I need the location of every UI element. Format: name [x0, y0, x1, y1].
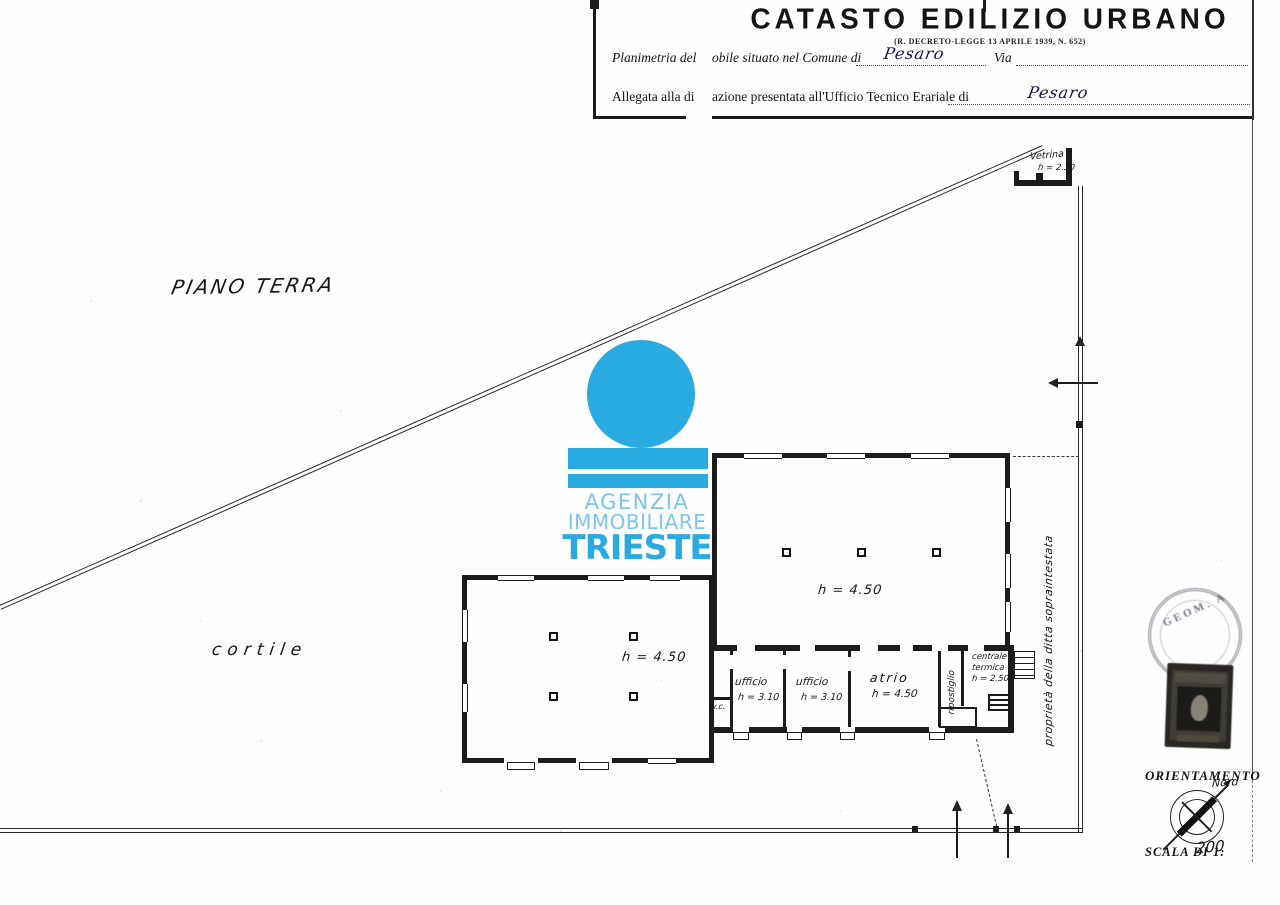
window-opening [1005, 554, 1011, 588]
wall [709, 697, 733, 700]
boundary-dashed-diagonal [976, 739, 998, 832]
boundary-tick-square-3 [1014, 826, 1020, 832]
column-pillar [782, 548, 791, 557]
right-hall-height-label: h = 4.50 [817, 583, 883, 598]
window-opening [588, 575, 624, 581]
side-annotation: proprietà della ditta sopraintestata [1042, 510, 1055, 747]
scale-value: 200 [1196, 837, 1225, 858]
survey-arrow-left-icon [1048, 378, 1058, 388]
ufficio2-height: h = 3.10 [800, 692, 842, 703]
wall [1014, 180, 1072, 186]
window-opening [648, 758, 676, 764]
external-stair-step [1014, 657, 1035, 658]
door-threshold [733, 732, 749, 740]
vetrina-height: h = 2.30 [1037, 163, 1075, 173]
window-opening [650, 575, 680, 581]
header-left-border [593, 0, 596, 118]
watermark-bar-bottom [568, 474, 708, 488]
door-threshold [507, 762, 535, 770]
window-opening [911, 453, 949, 459]
column-pillar [932, 548, 941, 557]
watermark-circle [587, 340, 695, 448]
column-pillar [857, 548, 866, 557]
revenue-stamp [1165, 663, 1234, 749]
watermark-line3: TRIESTE [557, 528, 717, 568]
orientation-title: ORIENTAMENTO [1145, 768, 1261, 784]
form-row2-fill-line [948, 104, 1250, 105]
revenue-stamp-top-band [1175, 672, 1225, 684]
form-row1-fill-line-2 [1016, 65, 1248, 66]
scan-noise [140, 500, 142, 502]
boundary-dashed-link [1013, 456, 1079, 457]
page-right-border [1252, 0, 1254, 120]
wall [1008, 645, 1014, 733]
ufficio2-label: ufficio [795, 676, 829, 688]
stair-step-line [988, 709, 1010, 711]
door-opening [737, 645, 755, 651]
form-row1-comune-value: Pesaro [882, 44, 946, 63]
vetrina-label: Vetrina [1030, 148, 1064, 162]
paper-crease-band [686, 108, 712, 122]
stair-step-line [988, 699, 1010, 701]
external-stair-step [1014, 675, 1035, 676]
door-opening [783, 655, 786, 669]
centrale-termica-line2: termica [971, 663, 1005, 673]
floor-label: PIANO TERRA [169, 273, 337, 300]
centrale-termica-height: h = 2.50 [971, 674, 1009, 684]
form-row2-label-b: azione presentata all'Ufficio Tecnico Er… [712, 89, 969, 105]
door-opening [730, 655, 733, 669]
atrio-label: atrio [869, 670, 909, 685]
wall [462, 575, 467, 763]
door-threshold [787, 732, 802, 740]
door-opening [900, 645, 913, 651]
centrale-termica-line1: centrale [971, 652, 1007, 662]
boundary-line-diagonal [0, 145, 1044, 610]
ufficio1-label: ufficio [734, 676, 768, 688]
survey-cross-line [1058, 382, 1098, 384]
wall [1036, 173, 1043, 180]
stair-step-line [988, 694, 1010, 696]
door-opening [932, 645, 948, 651]
boundary-line-bottom [0, 828, 1083, 833]
column-pillar [549, 692, 558, 701]
window-opening [1005, 488, 1011, 522]
door-threshold [579, 762, 609, 770]
watermark-bar-top [568, 448, 708, 469]
vestibule-room-outline [939, 707, 977, 728]
door-opening [860, 645, 878, 651]
window-opening [1005, 602, 1011, 632]
door-opening [848, 657, 851, 671]
window-opening [462, 684, 468, 712]
header-left-border-blot [590, 0, 599, 9]
page-right-border-dashed-tail [1252, 780, 1253, 862]
window-opening [744, 453, 782, 459]
window-opening [462, 610, 468, 642]
survey-arrow-up-icon [1075, 336, 1085, 346]
document-title: CATASTO EDILIZIO URBANO [730, 2, 1250, 35]
window-opening [498, 575, 534, 581]
ripostiglio-label: ripostiglio [947, 652, 957, 715]
wall [1014, 171, 1019, 180]
external-stair-step [1014, 663, 1035, 664]
boundary-line-right [1078, 186, 1083, 833]
form-row1-label-b: obile situato nel Comune di [712, 50, 861, 66]
door-threshold [840, 732, 855, 740]
entrance-arrow-head-1 [952, 800, 962, 811]
form-row1-fill-line-1 [856, 65, 986, 66]
page-right-border-lower [1252, 120, 1253, 780]
left-hall-height-label: h = 4.50 [621, 650, 687, 665]
entrance-arrow-line-2 [1007, 813, 1009, 858]
document-subtitle: (R. DECRETO-LEGGE 13 APRILE 1939, N. 652… [730, 37, 1250, 46]
door-threshold [929, 732, 945, 740]
stair-step-line [988, 704, 1010, 706]
wc-label: w.c. [710, 702, 726, 711]
boundary-tick-square-1 [912, 826, 918, 832]
form-row2-office-value: Pesaro [1026, 83, 1090, 102]
boundary-tick-square-2 [993, 826, 999, 832]
entrance-arrow-head-2 [1003, 803, 1013, 814]
door-opening [968, 645, 984, 651]
form-row2-label-a: Allegata alla di [612, 89, 694, 105]
column-pillar [629, 692, 638, 701]
external-stair-step [1014, 669, 1035, 670]
column-pillar [629, 632, 638, 641]
door-opening [800, 645, 815, 651]
north-label: Nord [1212, 775, 1239, 790]
atrio-height: h = 4.50 [871, 688, 918, 700]
revenue-stamp-bottom-band [1177, 734, 1219, 742]
ufficio1-height: h = 3.10 [737, 692, 779, 703]
form-row1-label-a: Planimetria del [612, 50, 696, 66]
boundary-node-square [1076, 421, 1083, 428]
window-opening [827, 453, 865, 459]
column-pillar [549, 632, 558, 641]
stair-side-line [988, 694, 990, 710]
scanned-cadastral-plan: CATASTO EDILIZIO URBANO (R. DECRETO-LEGG… [0, 0, 1280, 905]
form-row1-via-label: Via [994, 50, 1012, 66]
entrance-arrow-line-1 [956, 810, 958, 858]
courtyard-label: cortile [211, 640, 309, 660]
